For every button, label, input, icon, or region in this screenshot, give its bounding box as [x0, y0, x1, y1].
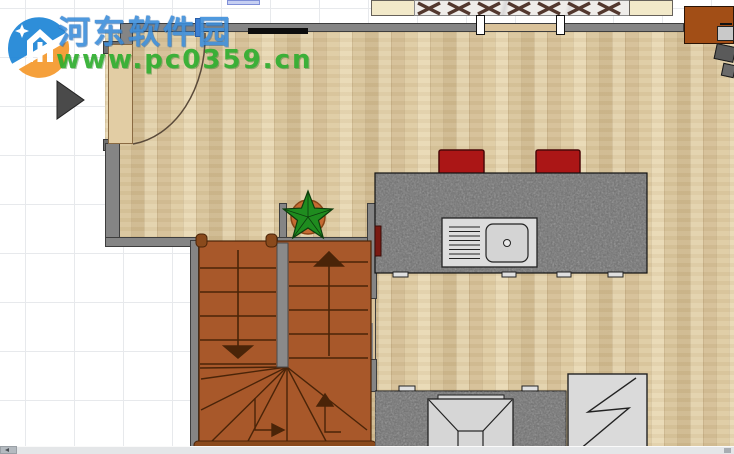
lower-left-wall[interactable]	[105, 237, 198, 247]
window-sill-cabinet-right[interactable]	[629, 0, 673, 16]
horizontal-scrollbar[interactable]	[0, 446, 734, 454]
left-wall[interactable]	[105, 143, 120, 247]
bottom-counter-group[interactable]	[375, 371, 648, 454]
kitchen-island-group[interactable]	[374, 148, 648, 280]
bar-stool-right[interactable]	[536, 150, 580, 174]
u-shaped-staircase[interactable]	[192, 233, 380, 454]
floor-plan-canvas[interactable]: 河东软件园 www.pc0359.cn	[0, 0, 734, 454]
island-end-panel	[375, 226, 381, 256]
window-jamb-right	[556, 15, 565, 35]
refrigerator[interactable]	[568, 374, 647, 454]
chair-x-glyphs	[415, 1, 631, 17]
newel-post-right	[266, 234, 277, 247]
bar-stool-left[interactable]	[439, 150, 484, 174]
newel-post-left	[196, 234, 207, 247]
cabinet-item-detail	[720, 23, 732, 25]
outside-area	[0, 245, 191, 454]
sink-drain	[504, 240, 511, 247]
watermark-site-url: www.pc0359.cn	[56, 45, 312, 75]
selected-furniture-edge[interactable]	[227, 0, 260, 5]
desk-chair-seat[interactable]	[721, 63, 734, 78]
sink-with-drainboard[interactable]	[442, 218, 537, 267]
potted-plant[interactable]	[282, 189, 336, 245]
scrollbar-right-grip[interactable]	[724, 448, 731, 453]
dining-chairs-row[interactable]	[414, 0, 630, 16]
window-sill-cabinet-left[interactable]	[371, 0, 415, 16]
scrollbar-left-arrow-icon	[5, 448, 9, 452]
stair-divider-wall[interactable]	[277, 243, 288, 367]
window[interactable]	[484, 23, 558, 32]
window-jamb-left	[476, 15, 485, 35]
wall-shelf[interactable]	[248, 28, 308, 34]
cabinet-appliance[interactable]	[717, 26, 734, 41]
